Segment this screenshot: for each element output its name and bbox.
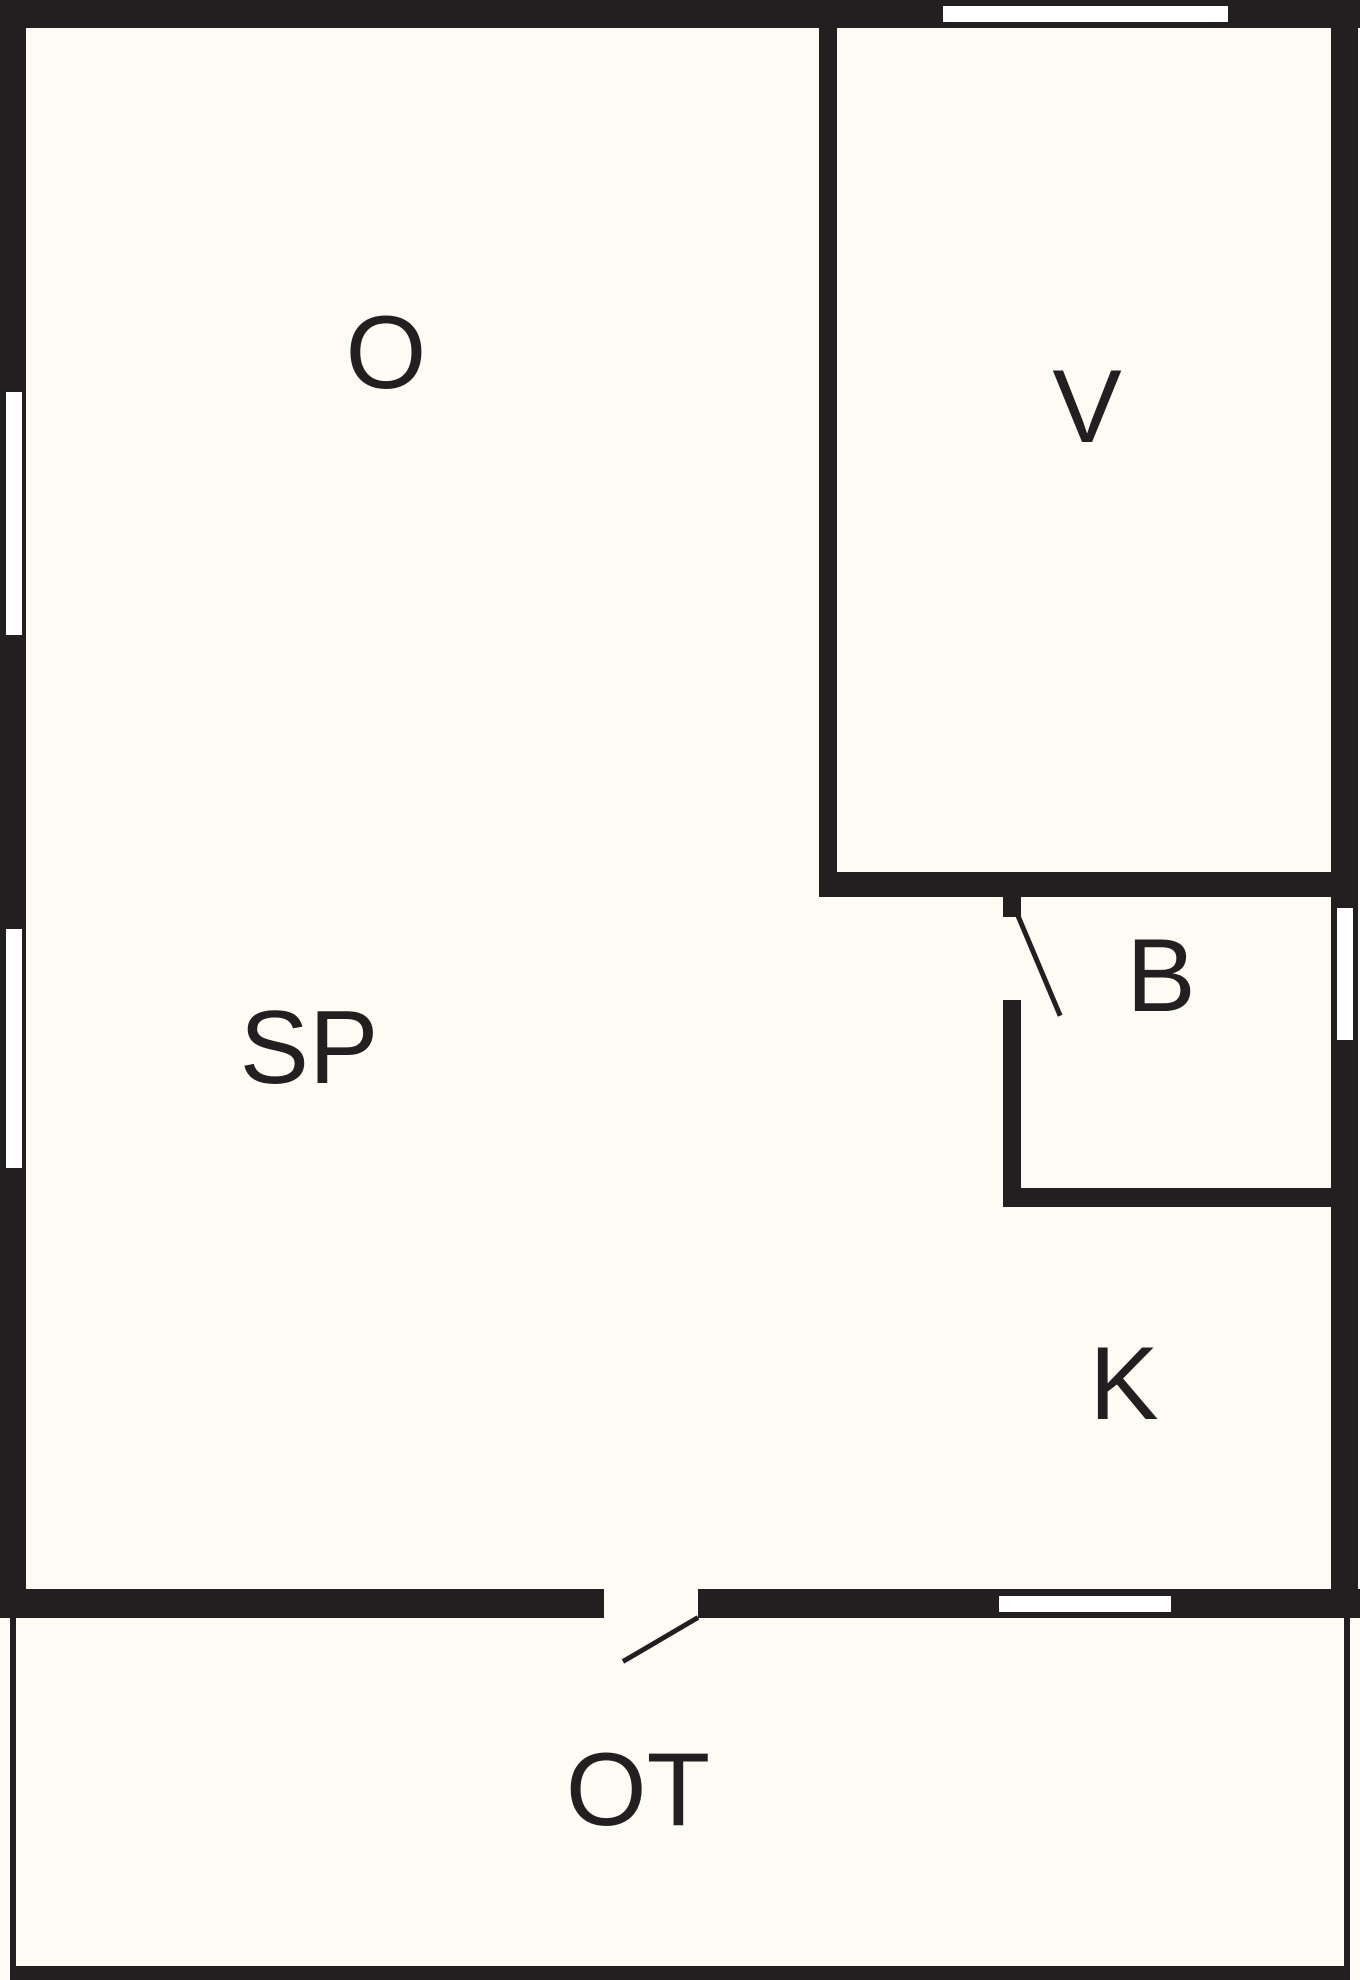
window-slot-top [943, 6, 1228, 22]
wall-right [1331, 0, 1358, 1618]
terrace-edge-left [10, 1618, 16, 1980]
window-slot-right [1337, 908, 1353, 1040]
window-slot-left-upper [6, 392, 22, 635]
window-slot-sp-ot [999, 1596, 1171, 1612]
room-label-k: K [1089, 1332, 1158, 1436]
room-label-o: O [346, 301, 427, 405]
wall-sp-ot-left [0, 1589, 604, 1618]
terrace-edge-right [1344, 1618, 1350, 1980]
room-label-v: V [1052, 355, 1121, 459]
wall-b-left [1003, 1000, 1021, 1207]
door-swing-line-ot [622, 1615, 700, 1663]
wall-o-v-divider [819, 28, 837, 897]
window-slot-left-lower [6, 929, 22, 1168]
wall-v-bottom [819, 872, 1358, 897]
wall-left [0, 0, 26, 1618]
floor-plan: O V SP B K OT [0, 0, 1360, 1980]
room-label-b: B [1126, 924, 1195, 1028]
terrace-edge-bottom [10, 1966, 1350, 1980]
room-label-ot: OT [566, 1738, 710, 1842]
wall-b-bottom [1003, 1188, 1331, 1207]
room-label-sp: SP [240, 996, 379, 1100]
door-swing-line-b [1015, 913, 1063, 1017]
